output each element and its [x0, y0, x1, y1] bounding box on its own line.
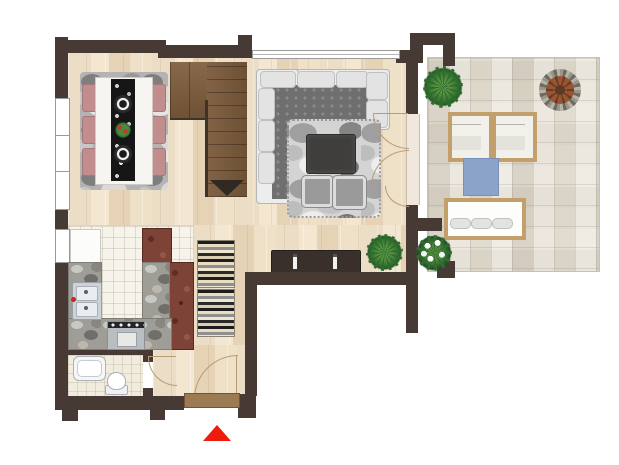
sofa-side-cushion — [258, 152, 275, 184]
pouf — [302, 176, 333, 207]
potted-plant-icon — [366, 234, 403, 271]
stove — [107, 321, 145, 350]
stair-down-arrow-icon — [210, 180, 244, 196]
bathtub — [73, 356, 106, 381]
lounger-headrest — [496, 124, 525, 125]
place-setting — [114, 95, 132, 113]
sofa-back-cushion — [336, 71, 368, 88]
toilet-bowl — [107, 372, 126, 390]
runner-rug-panel — [197, 289, 235, 337]
flowering-plant-icon — [416, 235, 452, 271]
sofa-back-cushion — [297, 71, 335, 88]
stair-divider — [205, 100, 208, 197]
candlestick — [293, 254, 297, 269]
wall-living-bottom — [245, 272, 418, 285]
runner-rug-panel — [197, 240, 235, 288]
wall-right-upper — [406, 58, 418, 114]
oven-door — [117, 332, 137, 347]
place-setting — [114, 145, 132, 163]
floor-plan: apartment-floor-plan — [0, 0, 619, 465]
window-dining — [55, 98, 70, 210]
wall-terrace-connector — [418, 218, 442, 231]
fire-bowl-center — [555, 85, 565, 95]
window-mullion — [253, 54, 399, 55]
entrance-threshold — [184, 393, 240, 408]
terrace-plant-icon — [423, 66, 463, 108]
wall-tab-stairs — [238, 35, 252, 58]
sofa-back-cushion — [260, 71, 296, 88]
kitchen-cabinet — [142, 228, 172, 266]
bench-cushion — [492, 218, 513, 229]
garden-bench — [444, 198, 526, 240]
window-mullion — [56, 135, 69, 136]
bathroom-door-leaf — [148, 356, 176, 357]
lounger-pad — [452, 136, 481, 150]
wall-stub-south — [406, 285, 418, 333]
french-door-leaf — [373, 113, 408, 114]
stove-controls — [108, 322, 144, 328]
sink-drain — [84, 290, 88, 294]
wall-entry-post — [238, 394, 256, 418]
lounger-pad — [496, 136, 525, 150]
sofa-side-cushion — [258, 88, 275, 120]
sun-lounger — [492, 112, 537, 162]
kitchen-sink — [72, 282, 102, 320]
stair-upper-landing — [170, 62, 208, 120]
pouf — [333, 176, 366, 209]
sun-lounger — [448, 112, 493, 162]
sideboard — [271, 250, 361, 274]
terrace-blue-mat — [463, 158, 499, 196]
entrance-door-leaf — [236, 355, 237, 398]
sofa-side-cushion — [258, 120, 275, 152]
stair-lower-flight — [207, 62, 247, 197]
bathtub-basin — [77, 360, 102, 377]
wall-hall-right — [245, 285, 257, 396]
wall-bottom-tab — [62, 408, 78, 421]
coffee-table — [306, 134, 356, 174]
fire-bowl — [539, 69, 581, 111]
wall-top-dining — [55, 40, 166, 53]
wall-bottom — [60, 396, 184, 410]
bench-cushion — [450, 218, 471, 229]
stair-landing-edge — [170, 118, 208, 120]
window-mullion — [56, 171, 69, 172]
lounger-headrest — [452, 124, 481, 125]
wall-left-lower — [55, 258, 68, 410]
sofa-arm-cushion — [366, 72, 388, 100]
wall-bathroom-door-stub — [143, 388, 153, 396]
wall-top-stairs — [158, 45, 250, 58]
sink-drain — [84, 306, 88, 310]
entrance-marker-icon — [203, 425, 231, 441]
window-living-top — [252, 50, 400, 59]
counter-granite-right — [142, 262, 170, 324]
wall-step-d — [443, 33, 455, 66]
bench-cushion — [471, 218, 492, 229]
table-centerpiece — [115, 122, 131, 138]
faucet-handle — [71, 297, 76, 302]
wall-bottom-tab — [150, 406, 165, 420]
refrigerator — [70, 229, 101, 266]
window-kitchen — [55, 229, 70, 263]
candlestick — [333, 254, 337, 269]
